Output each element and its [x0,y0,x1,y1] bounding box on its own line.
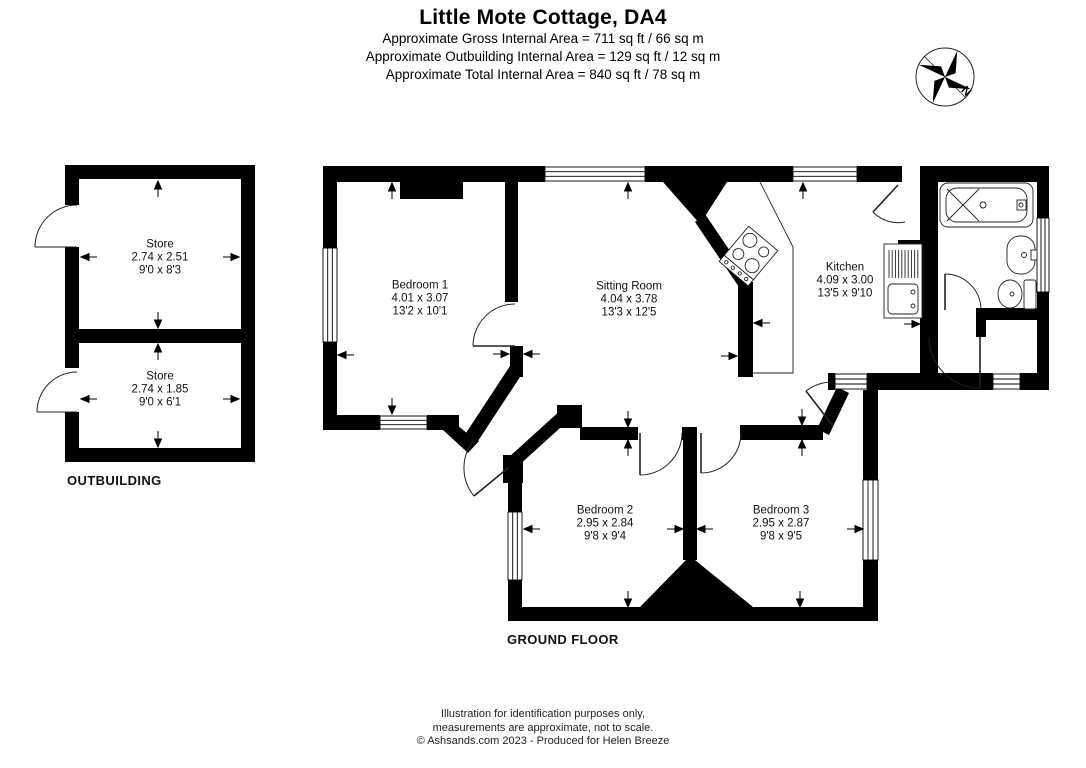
footer-line-1: Illustration for identification purposes… [0,708,1086,722]
room-label-bedroom-2: Bedroom 2 2.95 x 2.84 9'8 x 9'4 [577,505,634,544]
walls [65,165,1049,621]
store2-door [37,372,77,412]
room-imperial: 13'2 x 10'1 [392,306,449,319]
bedroom1-door [473,304,515,346]
room-name: Bedroom 2 [577,505,634,518]
outbuilding-label: OUTBUILDING [67,473,162,488]
ground-floor-label: GROUND FLOOR [507,632,619,647]
room-label-kitchen: Kitchen 4.09 x 3.00 13'5 x 9'10 [817,262,874,301]
room-imperial: 9'0 x 8'3 [132,265,189,278]
room-metric: 2.74 x 1.85 [132,384,189,397]
bedroom2-door [640,433,682,475]
washbasin-icon [1007,236,1037,274]
sitting-room-window [545,167,645,181]
room-label-bedroom-3: Bedroom 3 2.95 x 2.87 9'8 x 9'5 [753,505,810,544]
room-label-store-1: Store 2.74 x 2.51 9'0 x 8'3 [132,239,189,278]
bedroom1-left-window [323,248,337,342]
toilet-icon [998,280,1036,309]
room-imperial: 13'5 x 9'10 [817,288,874,301]
footer-line-2: measurements are approximate, not to sca… [0,722,1086,736]
room-name: Kitchen [817,262,874,275]
room-metric: 2.95 x 2.84 [577,518,634,531]
bedroom3-door [701,433,741,473]
room-name: Bedroom 1 [392,280,449,293]
room-imperial: 9'0 x 6'1 [132,397,189,410]
room-metric: 4.04 x 3.78 [596,294,662,307]
compass-icon [906,38,983,115]
bedroom2-window [508,512,522,580]
kitchen-sink-icon [884,244,922,318]
hob-icon [719,226,778,286]
bathtub-icon [940,183,1033,227]
room-metric: 4.09 x 3.00 [817,275,874,288]
bathroom-window [1037,218,1049,292]
footer-line-3: © Ashsands.com 2023 - Produced for Helen… [0,735,1086,749]
kitchen-window [793,167,857,181]
room-imperial: 9'8 x 9'4 [577,531,634,544]
room-label-store-2: Store 2.74 x 1.85 9'0 x 6'1 [132,371,189,410]
kitchen-counter [753,182,793,373]
bathroom-door [945,274,981,310]
hall-window [835,374,867,389]
room-name: Sitting Room [596,281,662,294]
room-imperial: 9'8 x 9'5 [753,531,810,544]
room-name: Bedroom 3 [753,505,810,518]
room-label-bedroom-1: Bedroom 1 4.01 x 3.07 13'2 x 10'1 [392,280,449,319]
bedroom3-window [863,480,878,560]
room-label-sitting-room: Sitting Room 4.04 x 3.78 13'3 x 12'5 [596,281,662,320]
room-metric: 4.01 x 3.07 [392,293,449,306]
room-metric: 2.74 x 2.51 [132,252,189,265]
store1-door [35,205,77,247]
floorplan-page: Little Mote Cottage, DA4 Approximate Gro… [0,0,1086,768]
kitchen-back-door [873,185,905,223]
room-imperial: 13'3 x 12'5 [596,307,662,320]
room-name: Store [132,239,189,252]
bedroom1-bottom-window [380,416,427,429]
lobby-window [993,374,1020,389]
room-metric: 2.95 x 2.87 [753,518,810,531]
fixtures [719,182,1037,373]
room-name: Store [132,371,189,384]
footer: Illustration for identification purposes… [0,708,1086,749]
